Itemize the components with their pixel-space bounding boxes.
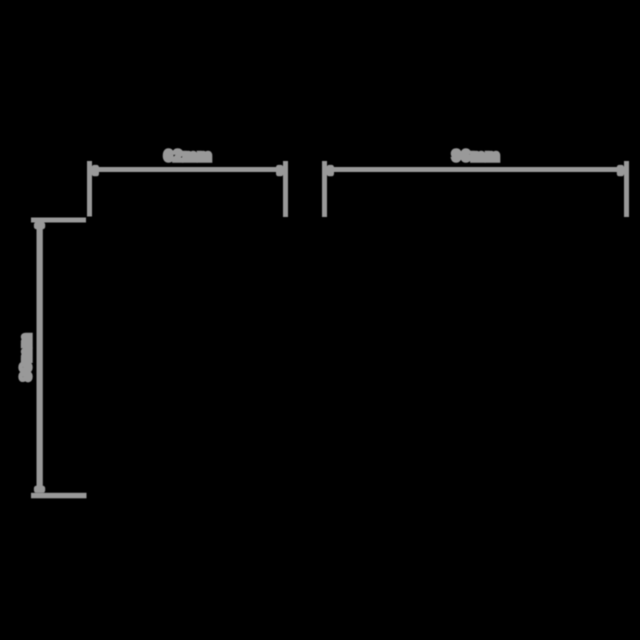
svg-text:62mm: 62mm bbox=[164, 148, 212, 165]
svg-text:88mm: 88mm bbox=[18, 333, 35, 381]
svg-text:96mm: 96mm bbox=[452, 148, 500, 165]
